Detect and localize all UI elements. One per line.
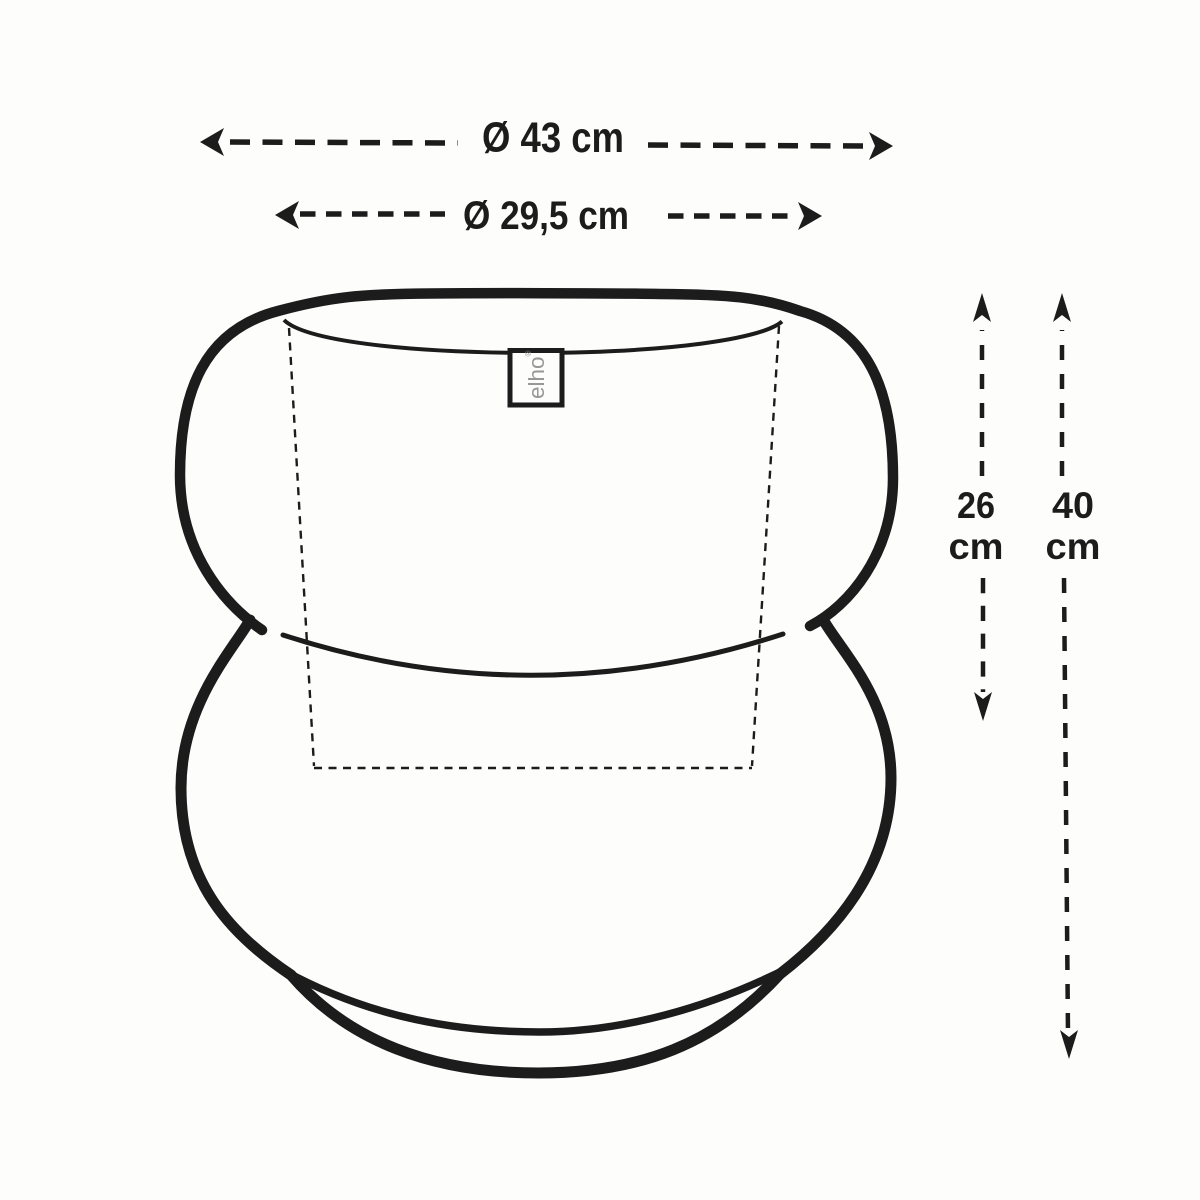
svg-text:cm: cm: [1046, 526, 1101, 567]
svg-text:Ø 43 cm: Ø 43 cm: [482, 114, 624, 162]
svg-text:Ø 29,5 cm: Ø 29,5 cm: [463, 194, 629, 238]
svg-text:26: 26: [957, 485, 995, 526]
svg-text:elho®: elho®: [524, 350, 549, 399]
svg-text:cm: cm: [949, 526, 1004, 567]
svg-text:40: 40: [1052, 485, 1094, 526]
